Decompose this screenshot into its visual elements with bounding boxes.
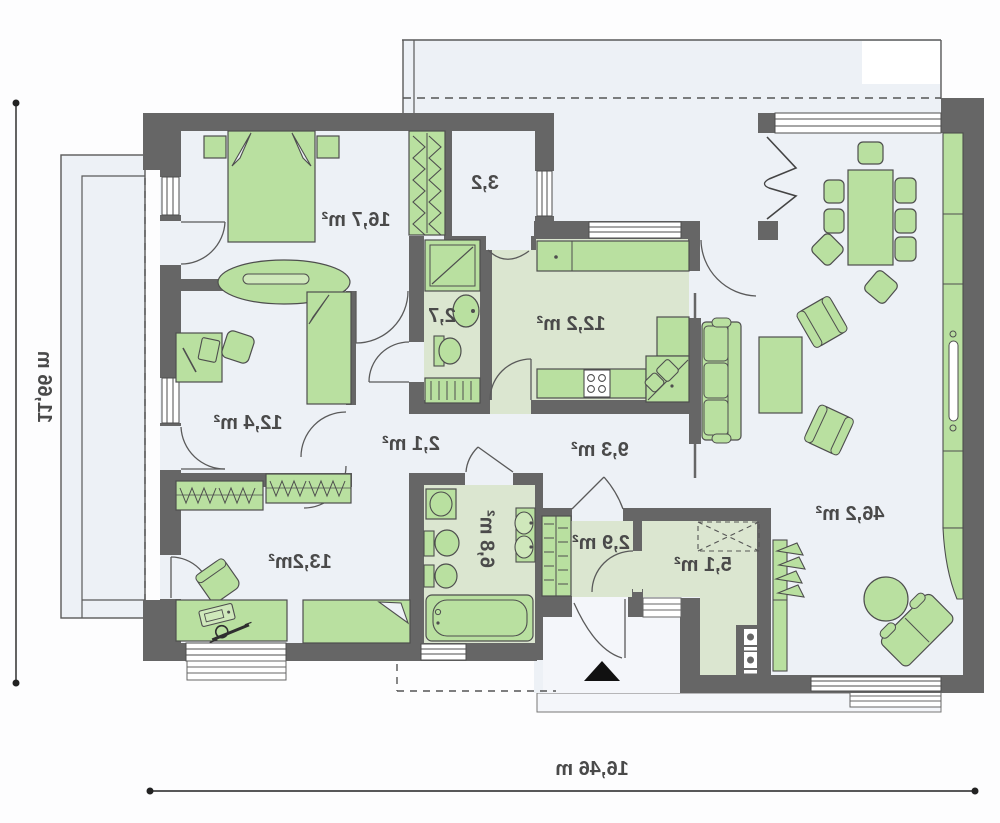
svg-text:9,3 m²: 9,3 m² (571, 439, 629, 461)
svg-text:6,8 m²: 6,8 m² (476, 510, 498, 568)
svg-text:3,2: 3,2 (471, 172, 499, 194)
svg-text:5,1 m²: 5,1 m² (674, 554, 732, 576)
svg-text:2,9 m²: 2,9 m² (572, 532, 630, 554)
svg-text:13,2m²: 13,2m² (268, 551, 332, 573)
svg-text:46,2 m²: 46,2 m² (815, 503, 884, 525)
svg-text:2,7: 2,7 (428, 305, 456, 327)
svg-text:16,7 m²: 16,7 m² (321, 209, 390, 231)
svg-text:12,4 m²: 12,4 m² (213, 412, 282, 434)
svg-text:2,1 m²: 2,1 m² (382, 433, 440, 455)
svg-text:16,46 m: 16,46 m (555, 758, 628, 780)
svg-text:12,2 m²: 12,2 m² (536, 313, 605, 335)
svg-text:11,66 m: 11,66 m (33, 351, 55, 423)
